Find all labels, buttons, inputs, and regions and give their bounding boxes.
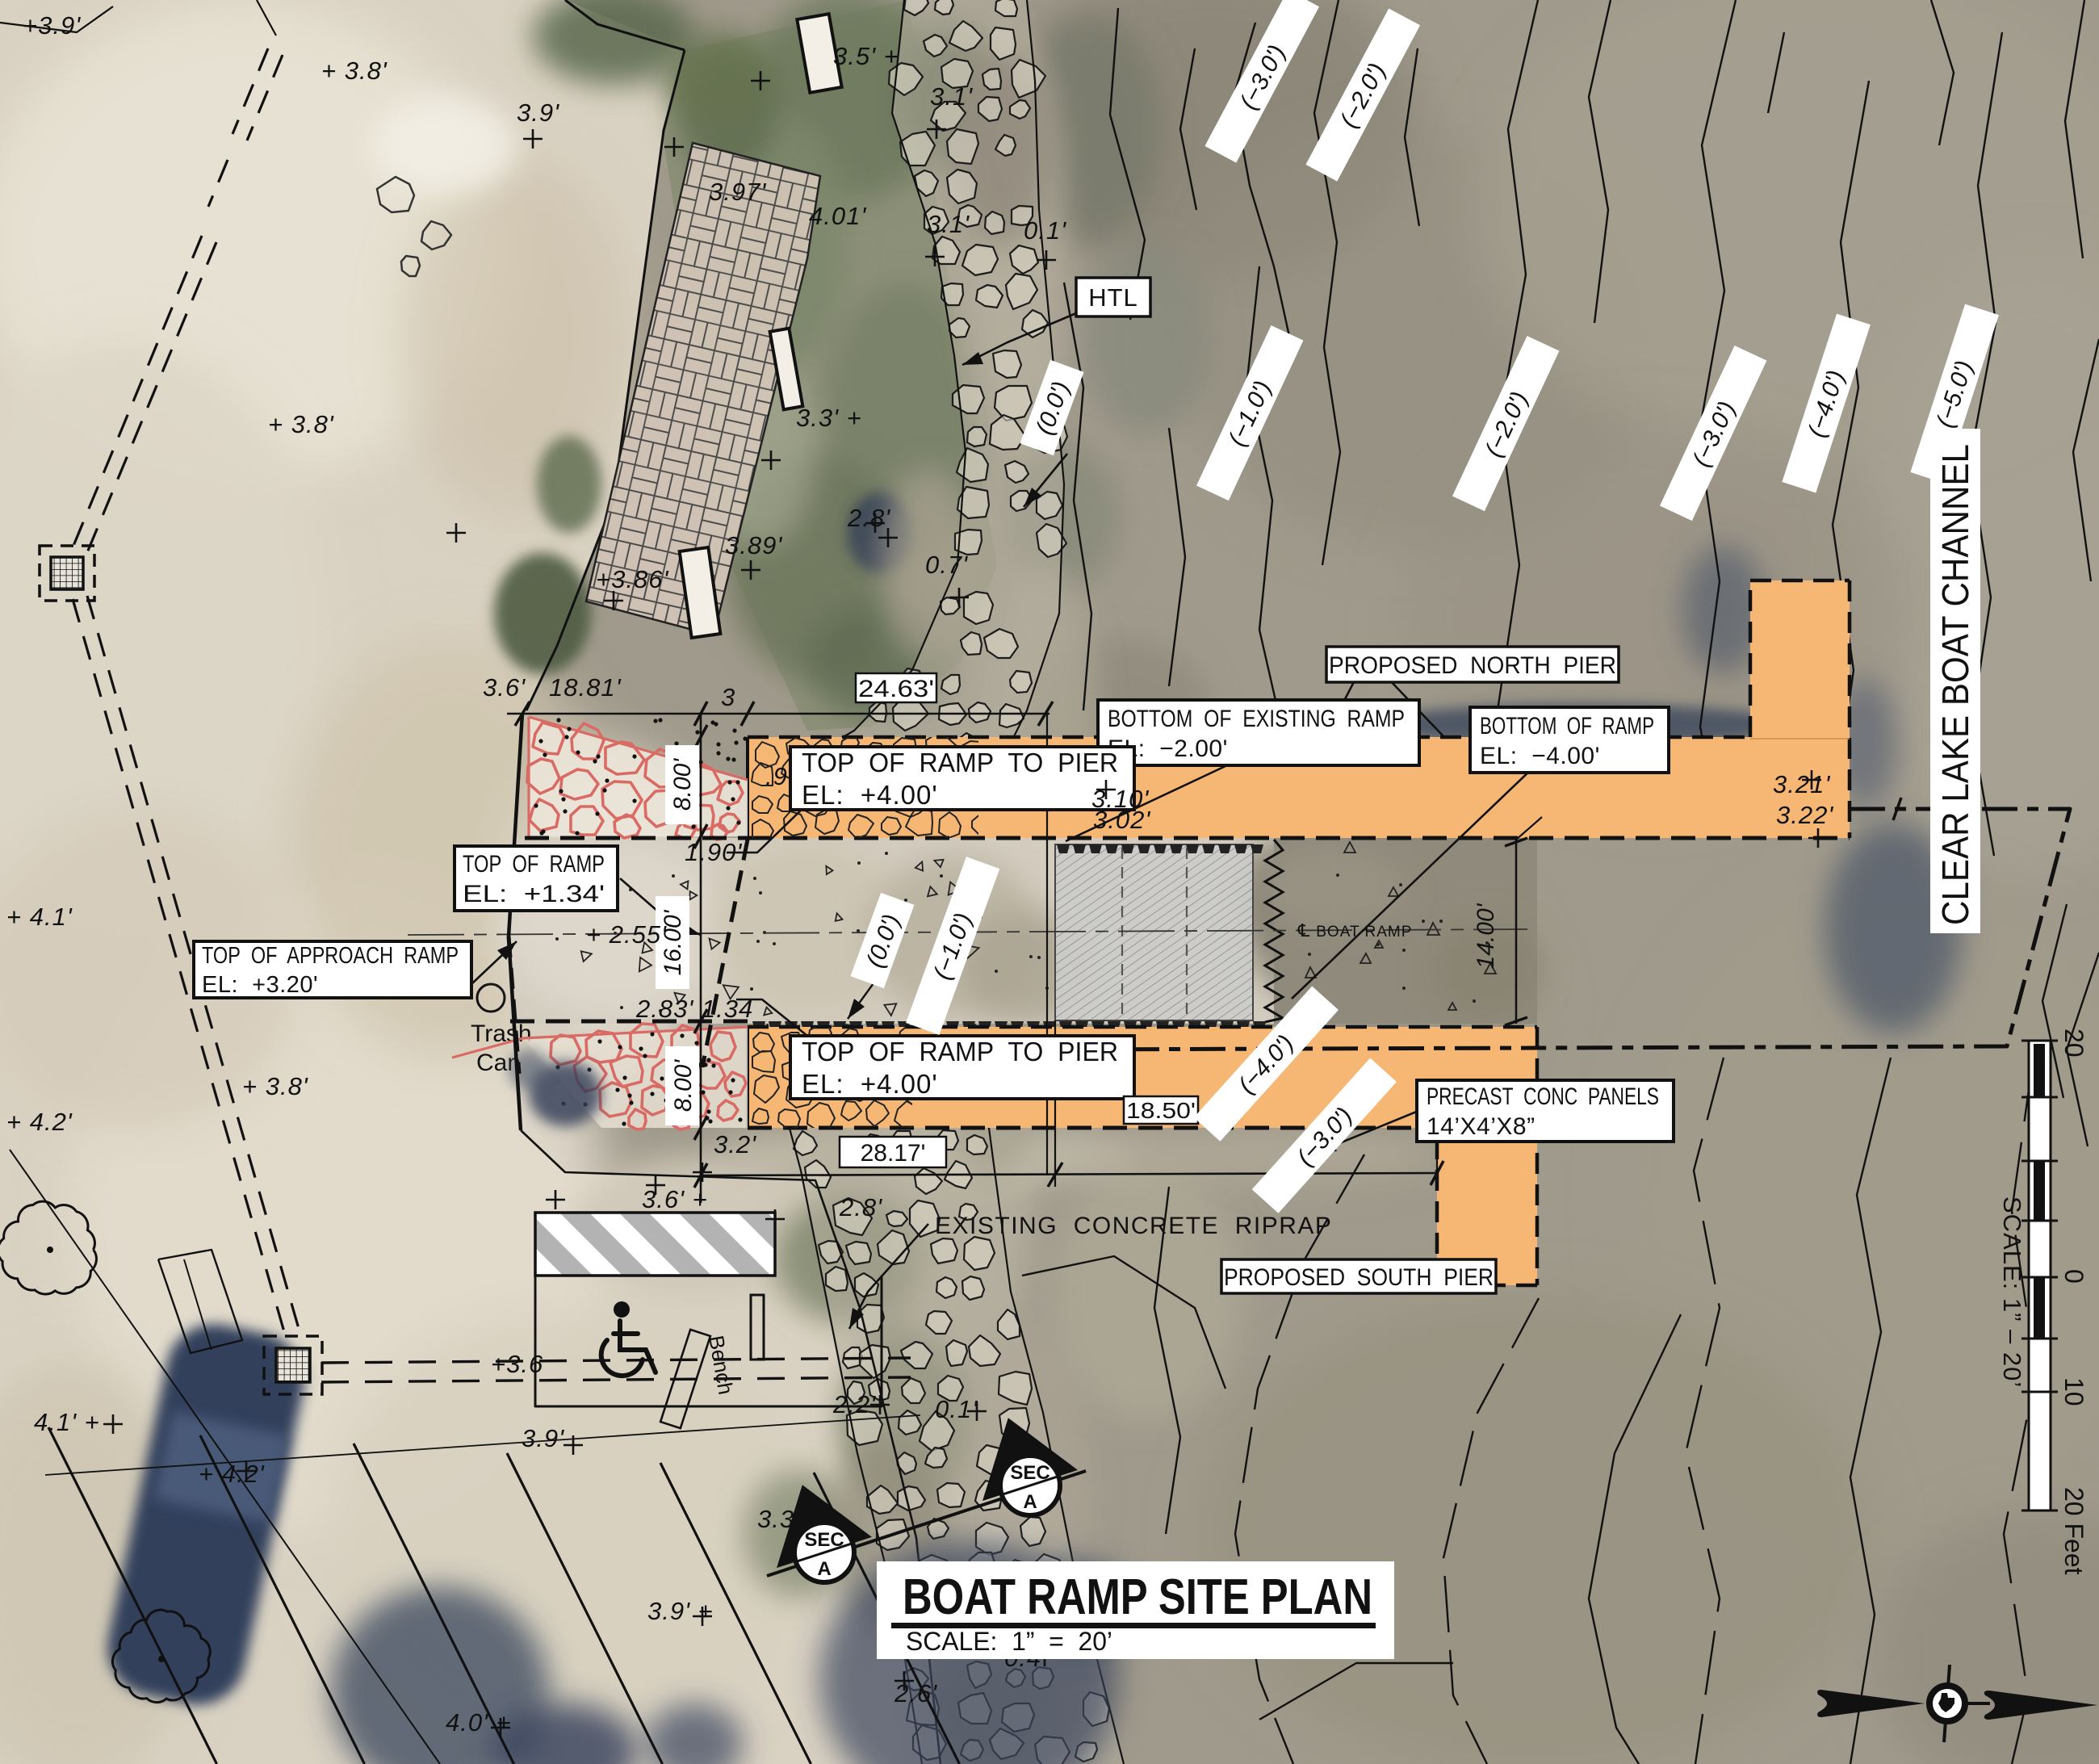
svg-text:8.00': 8.00': [669, 758, 696, 811]
svg-text:+ 3.8': + 3.8': [268, 410, 334, 438]
svg-text:14’X4’X8”: 14’X4’X8”: [1427, 1113, 1535, 1140]
svg-text:SEC: SEC: [804, 1529, 844, 1551]
svg-text:TOP OF RAMP: TOP OF RAMP: [463, 851, 605, 878]
svg-text:PROPOSED SOUTH PIER: PROPOSED SOUTH PIER: [1224, 1264, 1494, 1291]
svg-text:3.89': 3.89': [725, 531, 782, 559]
svg-text:8.00': 8.00': [670, 1059, 697, 1112]
svg-text:4.1' +: 4.1' +: [34, 1408, 100, 1436]
svg-text:TOP OF APPROACH RAMP: TOP OF APPROACH RAMP: [202, 943, 459, 969]
svg-text:0.7': 0.7': [925, 551, 968, 579]
svg-text:HTL: HTL: [1088, 283, 1138, 312]
svg-text:2.2': 2.2': [832, 1390, 876, 1418]
svg-text:4.01': 4.01': [809, 202, 866, 230]
svg-text:+ 4.1': + 4.1': [6, 903, 73, 931]
svg-text:3.21': 3.21': [1773, 770, 1830, 798]
svg-text:A: A: [817, 1558, 831, 1580]
svg-text:1.90': 1.90': [685, 838, 742, 866]
svg-text:3.3': 3.3': [757, 1505, 800, 1533]
svg-text:EXISTING CONCRETE RIPRAP: EXISTING CONCRETE RIPRAP: [935, 1213, 1332, 1239]
svg-text:3.1': 3.1': [930, 82, 973, 111]
svg-text:3.9' +: 3.9' +: [647, 1597, 714, 1625]
svg-text:BOAT RAMP SITE PLAN: BOAT RAMP SITE PLAN: [903, 1569, 1372, 1625]
svg-text:EL: +4.00': EL: +4.00': [802, 1069, 938, 1099]
svg-text:10: 10: [2059, 1377, 2089, 1406]
svg-text:3.5' +: 3.5' +: [833, 42, 899, 70]
svg-text:2.8': 2.8': [839, 1193, 882, 1221]
svg-text:CLEAR LAKE BOAT CHANNEL: CLEAR LAKE BOAT CHANNEL: [1934, 444, 1976, 925]
svg-text:0.1': 0.1': [935, 1395, 978, 1423]
svg-text:+3.6: +3.6: [491, 1350, 543, 1378]
svg-text:3.02': 3.02': [1093, 806, 1150, 834]
svg-text:PRECAST CONC PANELS: PRECAST CONC PANELS: [1427, 1083, 1659, 1110]
svg-text:3.9': 3.9': [522, 1424, 564, 1452]
svg-text:SEC: SEC: [1010, 1462, 1049, 1484]
svg-text:TOP OF RAMP TO PIER: TOP OF RAMP TO PIER: [802, 1037, 1118, 1066]
svg-text:3.1': 3.1': [927, 210, 970, 238]
svg-text:0.1': 0.1': [1024, 216, 1066, 245]
svg-text:+ 2.55': + 2.55': [586, 920, 667, 949]
svg-text:EL: +1.34': EL: +1.34': [463, 881, 605, 907]
svg-text:20: 20: [2059, 1029, 2089, 1058]
svg-text:EL: +3.20': EL: +3.20': [202, 972, 318, 998]
svg-text:+3.9': +3.9': [23, 11, 81, 40]
svg-text:3.22': 3.22': [1776, 801, 1833, 829]
svg-text:SCALE: 1” = 20’: SCALE: 1” = 20’: [906, 1627, 1112, 1656]
svg-text:A: A: [1023, 1491, 1037, 1513]
svg-text:3.97': 3.97': [709, 178, 766, 206]
svg-text:18.50': 18.50': [1126, 1098, 1196, 1123]
svg-text:3.6': 3.6': [483, 673, 526, 702]
svg-text:BOTTOM OF RAMP: BOTTOM OF RAMP: [1480, 713, 1654, 740]
svg-text:+ 3.8': + 3.8': [321, 57, 388, 85]
svg-text:14.00': 14.00': [1473, 903, 1499, 969]
svg-text:+3.86': +3.86': [596, 565, 668, 593]
svg-text:EL: −4.00': EL: −4.00': [1480, 743, 1600, 769]
svg-text:.9: .9: [765, 762, 788, 790]
svg-text:3.3' +: 3.3' +: [796, 404, 862, 432]
svg-text:BOTTOM OF EXISTING RAMP: BOTTOM OF EXISTING RAMP: [1108, 706, 1405, 732]
svg-text:2.8': 2.8': [847, 504, 890, 532]
svg-text:3.6' +: 3.6' +: [642, 1185, 708, 1213]
svg-text:+ 4.2': + 4.2': [6, 1108, 73, 1136]
svg-text:3: 3: [721, 683, 735, 711]
svg-text:+ 3.8': + 3.8': [242, 1072, 308, 1100]
svg-text:+ 4.2': + 4.2': [199, 1460, 265, 1488]
svg-text:PROPOSED NORTH PIER: PROPOSED NORTH PIER: [1329, 652, 1616, 679]
svg-text:3.2': 3.2': [714, 1130, 756, 1159]
svg-text:0: 0: [2059, 1269, 2089, 1284]
svg-text:4.0' +: 4.0' +: [446, 1708, 512, 1737]
svg-text:SCALE: 1” – 20’: SCALE: 1” – 20’: [1998, 1196, 2026, 1388]
svg-text:2.6': 2.6': [894, 1679, 937, 1707]
svg-text:20 Feet: 20 Feet: [2059, 1487, 2089, 1575]
svg-text:2.83' 1.34: 2.83' 1.34: [635, 995, 753, 1023]
svg-text:TOP OF RAMP TO PIER: TOP OF RAMP TO PIER: [802, 748, 1118, 777]
svg-text:3.9': 3.9': [517, 98, 559, 127]
svg-text:18.81': 18.81': [549, 673, 622, 702]
svg-text:EL: +4.00': EL: +4.00': [802, 780, 938, 810]
svg-text:28.17': 28.17': [861, 1140, 926, 1167]
svg-text:24.63': 24.63': [858, 676, 934, 702]
